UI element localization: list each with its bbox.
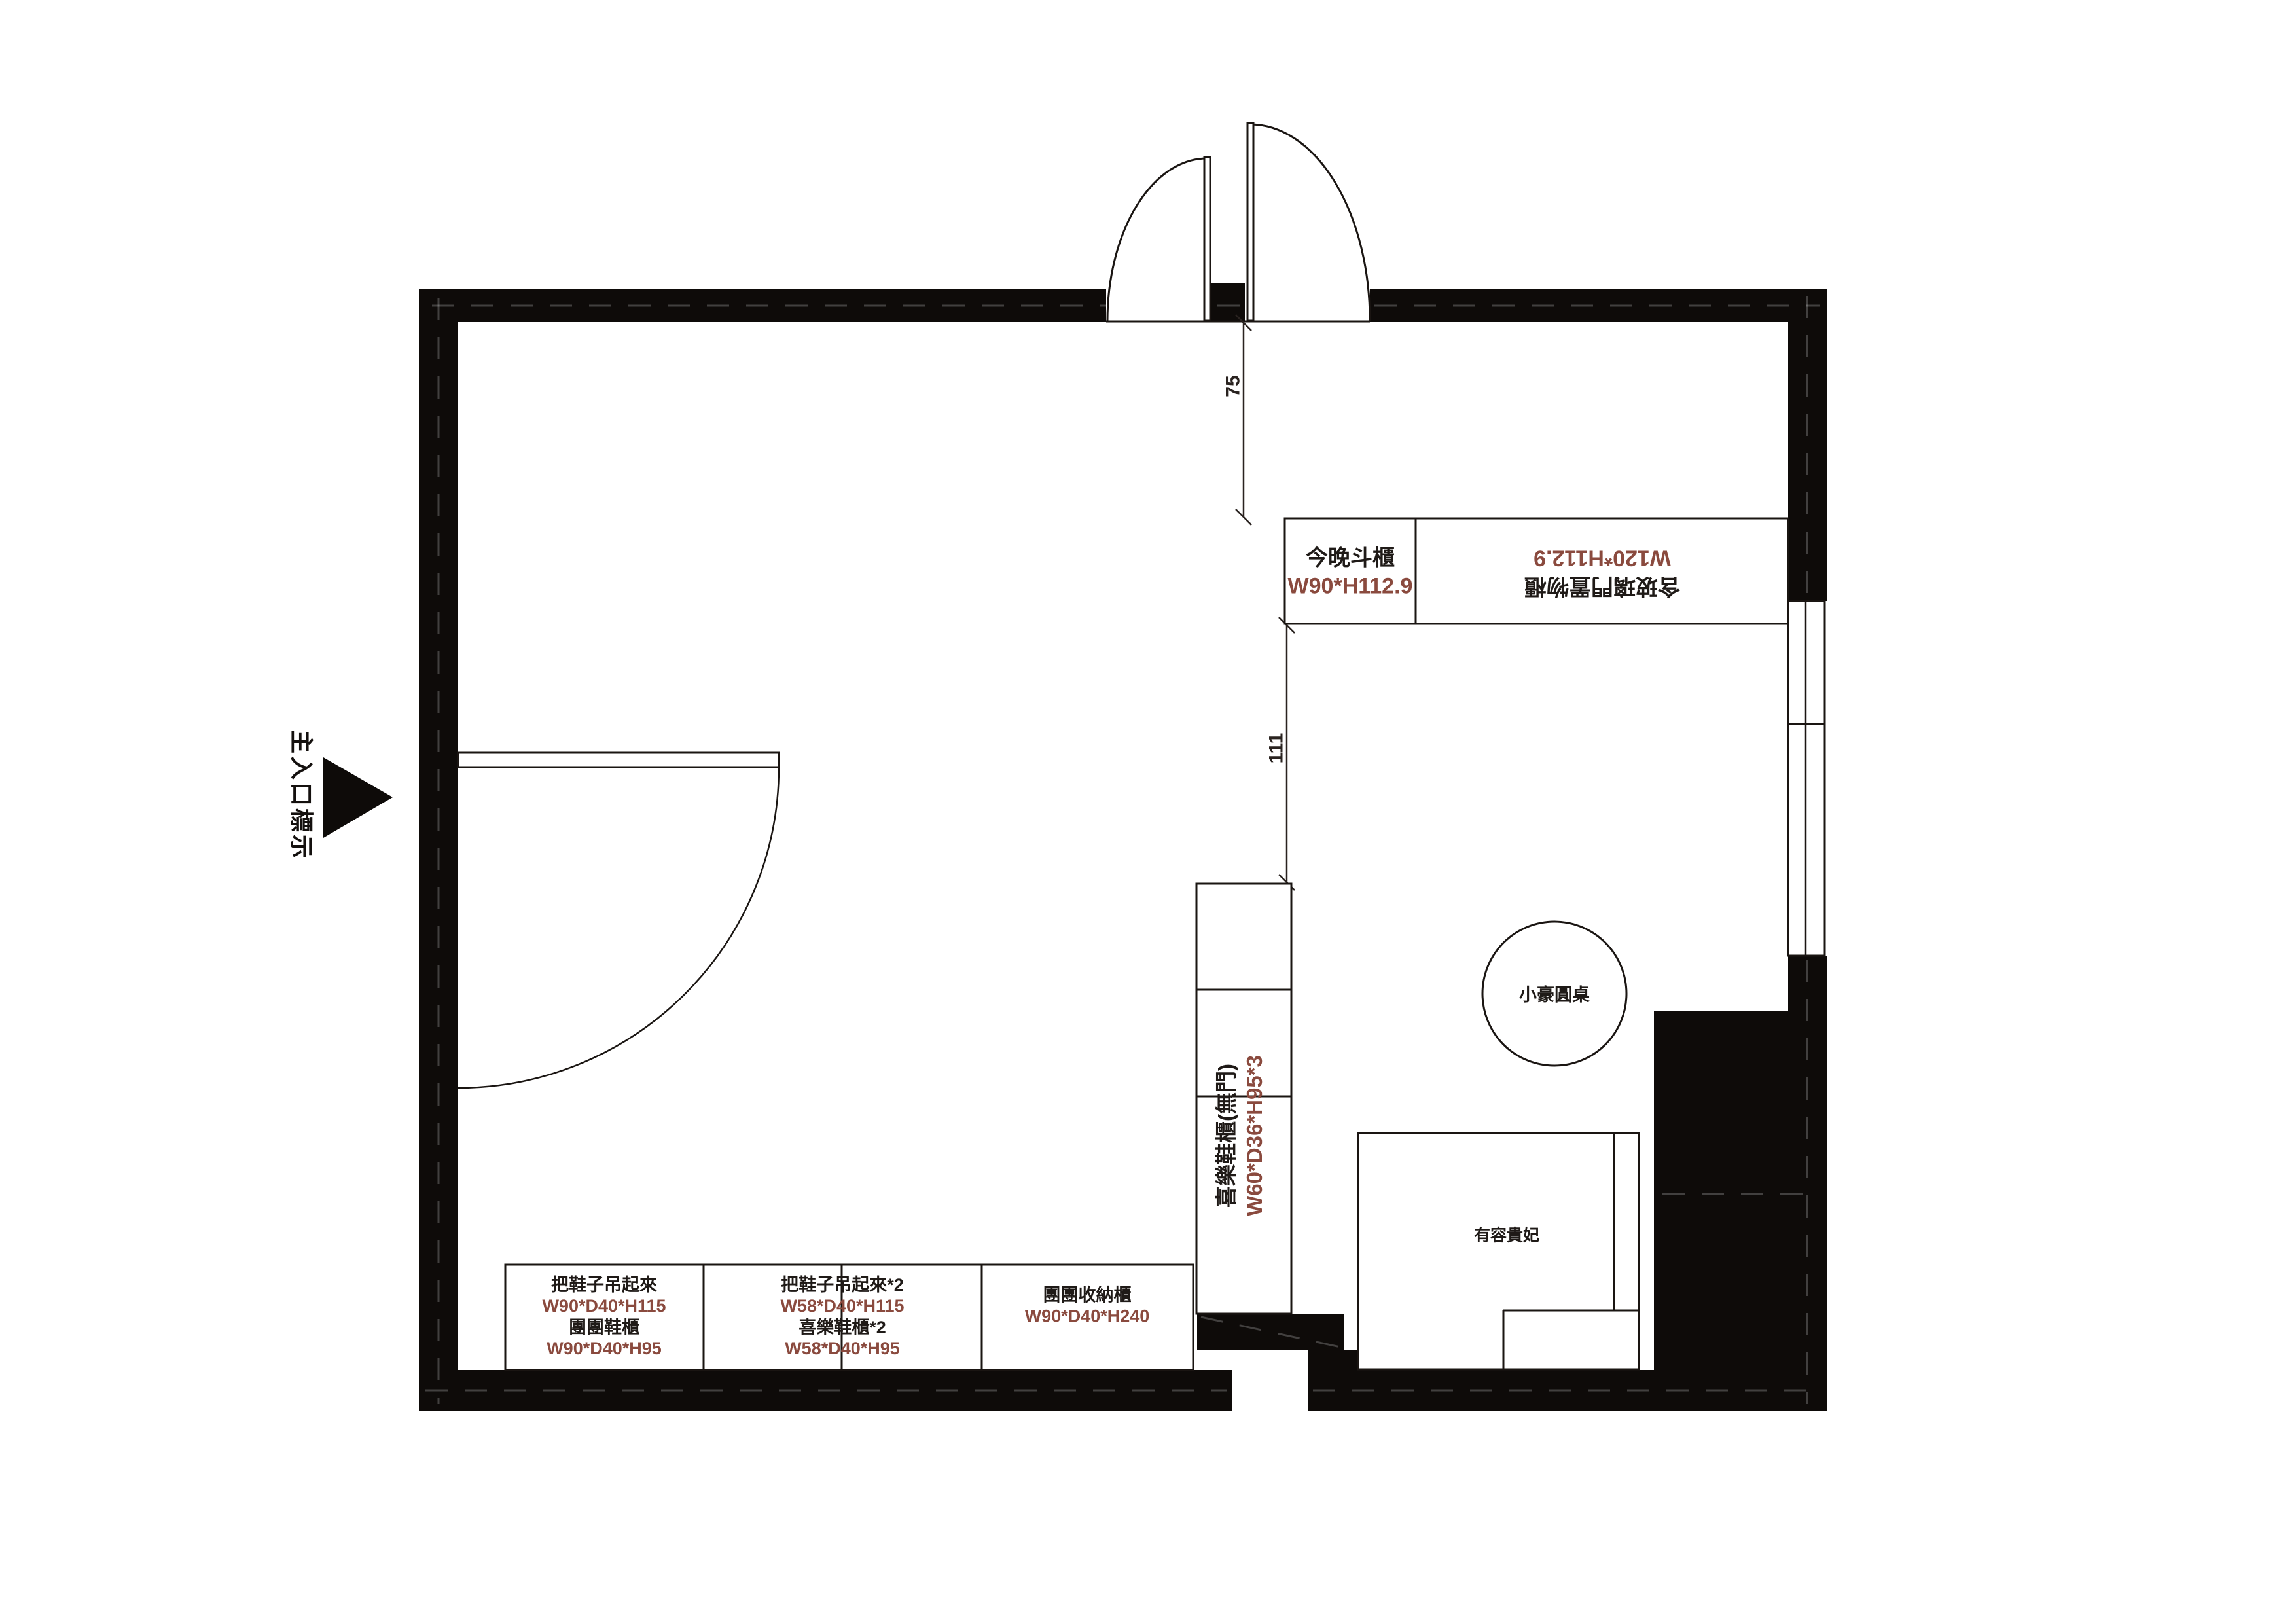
- round-table-label: 小豪圓桌: [1519, 984, 1590, 1005]
- bottom-cabinet-2-size: W58*D40*H115: [780, 1296, 904, 1317]
- interior-door-leaf: [458, 753, 779, 767]
- tall-shoe-cabinet-size: W60*D36*H95*3: [1241, 1055, 1269, 1216]
- dim-111-label: 111: [1265, 733, 1287, 764]
- window-right-wall: [1788, 601, 1825, 956]
- chest-cabinet-size: W90*H112.9: [1288, 572, 1413, 600]
- dim-75-label: 75: [1221, 375, 1244, 397]
- furniture: [505, 518, 1788, 1370]
- bottom-cabinet-1-size: W90*D40*H115: [542, 1296, 666, 1317]
- entrance-arrow-icon: [323, 757, 393, 838]
- chaise-box: [1358, 1133, 1639, 1369]
- tall-shoe-cabinet-label: 喜樂鞋櫃(無門) W60*D36*H95*3: [1213, 1055, 1269, 1216]
- sideboard-cabinet-size: W120*H112.9: [1524, 545, 1680, 573]
- chest-cabinet-name: 今晚斗櫃: [1288, 545, 1413, 573]
- entrance-label: 主入口標示: [287, 730, 315, 861]
- bottom-cabinet-2-size-2: W58*D40*H95: [780, 1338, 904, 1359]
- bottom-cabinet-2-label: 把鞋子吊起來*2 W58*D40*H115 喜樂鞋櫃*2 W58*D40*H95: [780, 1274, 904, 1360]
- bottom-cabinet-1-name-2: 團團鞋櫃: [542, 1317, 666, 1338]
- interior-door-arc: [458, 767, 779, 1088]
- wall-stub-connector: [1308, 1350, 1361, 1373]
- floor-plan-drawing: [0, 0, 2296, 1624]
- wall-threshold-stub: [1197, 1314, 1344, 1350]
- chest-cabinet-label: 今晚斗櫃 W90*H112.9: [1288, 545, 1413, 600]
- door-leaf-right: [1247, 123, 1253, 321]
- floor-plan-canvas: 主入口標示 75 111 今晚斗櫃 W90*H112.9 含玻璃門置物櫃 W12…: [0, 0, 2296, 1624]
- door-leaf-left: [1204, 157, 1210, 321]
- wall-corner-mass: [1654, 1011, 1827, 1411]
- bottom-cabinet-1-name: 把鞋子吊起來: [542, 1274, 666, 1295]
- interior-door: [458, 753, 779, 1088]
- bottom-cabinet-1-label: 把鞋子吊起來 W90*D40*H115 團團鞋櫃 W90*D40*H95: [542, 1274, 666, 1360]
- bottom-cabinet-2-name-2: 喜樂鞋櫃*2: [780, 1317, 904, 1338]
- bottom-cabinet-3-label: 團團收納櫃 W90*D40*H240: [1025, 1285, 1150, 1327]
- bottom-cabinet-1-size-2: W90*D40*H95: [542, 1338, 666, 1359]
- bottom-cabinet-3-name: 團團收納櫃: [1025, 1285, 1150, 1306]
- wall-stub-between-doors: [1209, 283, 1245, 322]
- sideboard-cabinet-label: 含玻璃門置物櫃 W120*H112.9: [1524, 545, 1680, 600]
- sideboard-cabinet-name: 含玻璃門置物櫃: [1524, 572, 1680, 600]
- chaise-label: 有容貴妃: [1474, 1226, 1539, 1246]
- tall-shoe-cabinet-name: 喜樂鞋櫃(無門): [1213, 1055, 1241, 1216]
- bottom-cabinet-2-name: 把鞋子吊起來*2: [780, 1274, 904, 1295]
- bottom-cabinet-3-size: W90*D40*H240: [1025, 1306, 1150, 1327]
